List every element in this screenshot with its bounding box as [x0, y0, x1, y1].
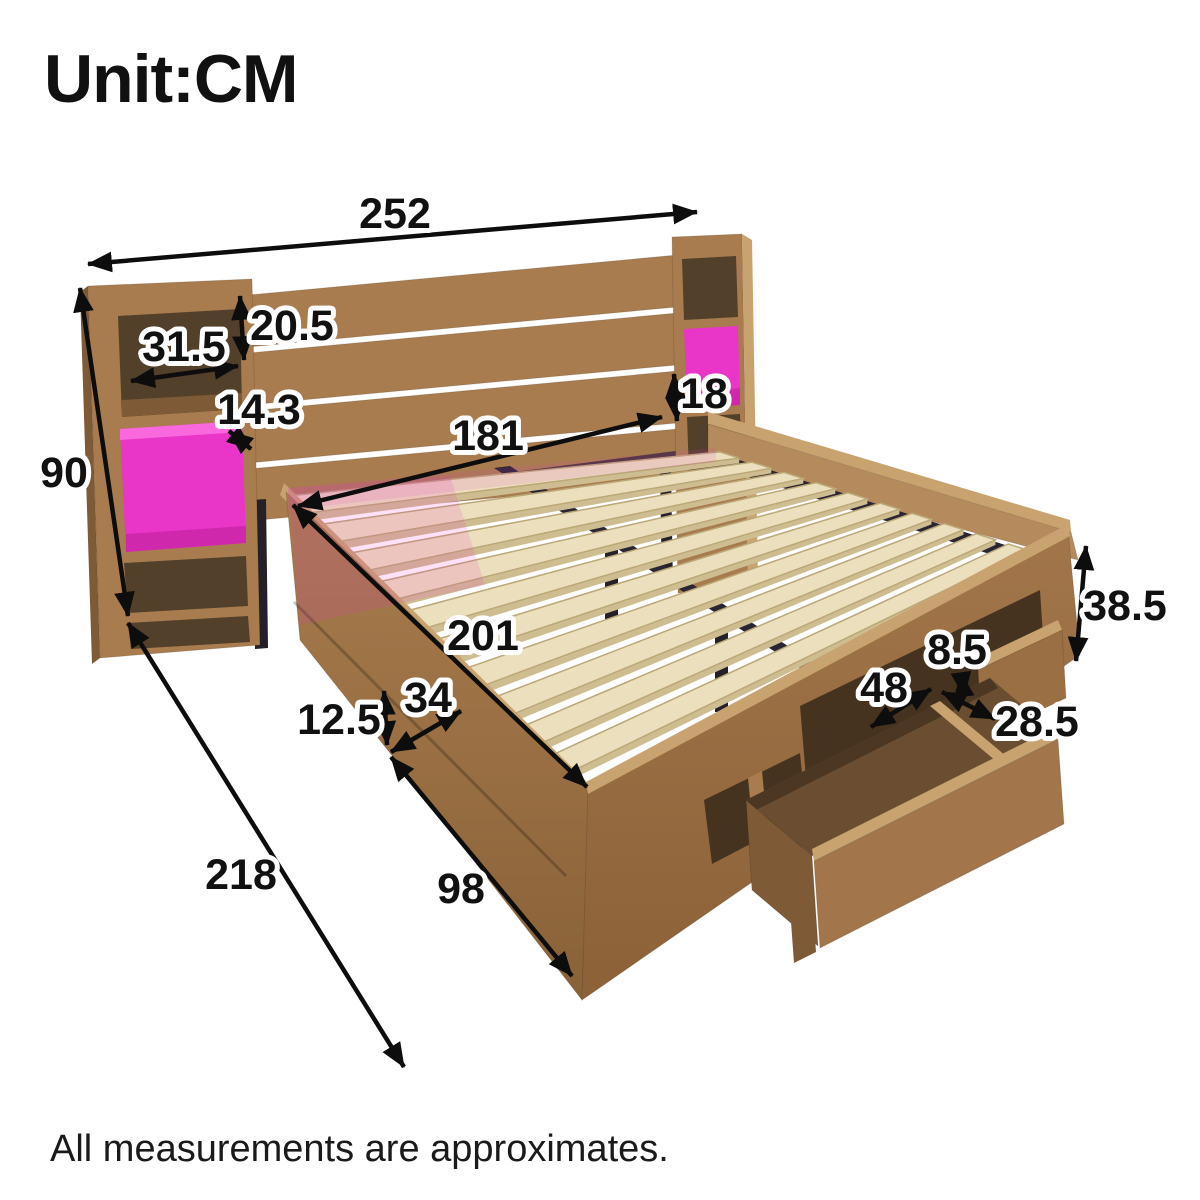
shelf-opening	[124, 556, 248, 613]
dimension-value: 38.5	[1083, 582, 1167, 630]
dimension-value: 18	[680, 370, 728, 418]
dimension-value: 90	[40, 449, 88, 497]
dimension-value: 98	[437, 865, 485, 913]
dimension-value: 34	[404, 674, 452, 722]
dimension-value: 218	[205, 851, 277, 899]
dimension-value: 28.5	[995, 698, 1079, 746]
dimension-overall-width: 252	[88, 190, 697, 264]
dimension-value: 8.5	[927, 626, 987, 674]
dimension-value: 252	[359, 190, 431, 238]
dimension-frame-height: 38.5	[1076, 546, 1167, 661]
diagram-canvas: Unit:CM	[0, 0, 1200, 1200]
dimension-headboard-clearance: 18	[674, 370, 728, 421]
bed-dimension-diagram: 2529031.520.514.31818120112.5349821838.5…	[0, 0, 1200, 1200]
dimension-value: 48	[860, 664, 908, 712]
shelf-opening	[682, 256, 738, 320]
dimension-base-clearance: 12.5	[297, 691, 387, 745]
measurement-note: All measurements are approximates.	[50, 1128, 669, 1171]
dimension-value: 201	[447, 612, 519, 660]
dimension-value: 14.3	[217, 386, 301, 434]
dimension-arrow	[674, 374, 677, 421]
dimension-arrow	[384, 691, 387, 745]
dimension-value: 31.5	[142, 323, 226, 371]
dimension-value: 20.5	[250, 302, 334, 350]
led-compartment-left	[120, 421, 246, 552]
dimension-arrow	[961, 673, 964, 696]
dimension-value: 12.5	[297, 696, 381, 744]
dimension-value: 181	[452, 412, 524, 460]
